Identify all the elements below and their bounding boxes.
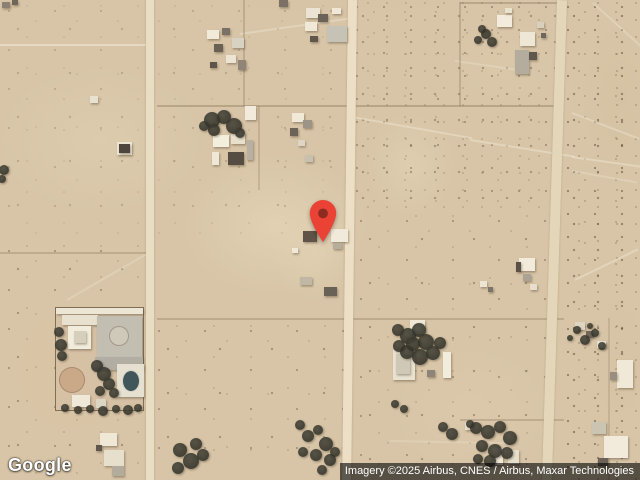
tree [501, 447, 513, 459]
tree [573, 326, 581, 334]
building [617, 360, 633, 388]
building [112, 466, 124, 476]
building [96, 445, 102, 451]
building [537, 22, 544, 28]
tree [478, 25, 486, 33]
building [292, 248, 298, 253]
attribution-bar: Imagery ©2025 Airbus, CNES / Airbus, Max… [340, 463, 640, 480]
building [212, 152, 219, 165]
ground-circle [122, 370, 140, 392]
building [318, 14, 328, 22]
building [303, 120, 312, 128]
tree [598, 342, 606, 350]
tree [587, 323, 593, 329]
parcel-boundary-line [459, 2, 461, 106]
tree [61, 404, 69, 412]
building [592, 422, 606, 434]
building [226, 55, 236, 63]
building [310, 36, 318, 42]
tree [400, 405, 408, 413]
building [119, 144, 130, 153]
building [214, 44, 223, 52]
building [520, 32, 535, 46]
building [213, 135, 229, 147]
tree [112, 405, 120, 413]
scrub-texture [563, 0, 640, 480]
tree [406, 337, 420, 351]
building [2, 2, 10, 8]
tree [235, 128, 245, 138]
tree [109, 388, 119, 398]
parcel-boundary-line [258, 106, 260, 190]
building [90, 96, 98, 103]
building [232, 38, 244, 48]
building [529, 52, 537, 60]
tree [295, 420, 305, 430]
building [305, 22, 317, 31]
building [300, 277, 312, 285]
google-logo[interactable]: Google [8, 455, 72, 476]
tree [466, 420, 474, 428]
building [427, 370, 435, 377]
tree [591, 329, 599, 337]
building [100, 433, 117, 446]
building [74, 331, 86, 343]
tree [580, 335, 590, 345]
tree [567, 335, 573, 341]
tree [434, 337, 446, 349]
building [238, 60, 246, 70]
tree [317, 465, 327, 475]
tree [474, 36, 482, 44]
tree [55, 339, 67, 351]
building [247, 140, 253, 160]
map-pin-icon[interactable] [309, 200, 337, 242]
ground-circle [59, 367, 85, 393]
parcel-boundary-line [243, 0, 245, 106]
parcel-boundary-line [0, 44, 148, 46]
building [298, 140, 305, 146]
tree [446, 428, 458, 440]
building [228, 152, 244, 165]
tree [494, 421, 506, 433]
building [279, 0, 288, 7]
building [245, 106, 256, 120]
parcel-boundary-line [157, 105, 557, 107]
building [480, 281, 487, 287]
building [530, 284, 537, 290]
tree [134, 404, 142, 412]
tree [98, 406, 108, 416]
building [505, 8, 512, 13]
tree [190, 438, 202, 450]
tree [412, 349, 428, 365]
tree [86, 405, 94, 413]
tree [54, 327, 64, 337]
building [207, 30, 219, 39]
ground-circle [109, 326, 129, 346]
building [541, 33, 546, 38]
building [515, 50, 529, 74]
tree [302, 430, 314, 442]
dirt-road [146, 0, 154, 480]
building [488, 287, 493, 292]
satellite-map[interactable]: Google Imagery ©2025 Airbus, CNES / Airb… [0, 0, 640, 480]
pin-dot [318, 208, 328, 218]
parcel-boundary-line [460, 2, 560, 4]
building [222, 28, 230, 35]
tree [123, 405, 133, 415]
pin-body [310, 200, 336, 242]
tree [199, 121, 209, 131]
building [519, 258, 535, 271]
parcel-boundary-line [0, 252, 150, 254]
tree [313, 425, 323, 435]
building [604, 436, 628, 458]
building [516, 262, 521, 272]
building [56, 308, 143, 314]
tree [487, 37, 497, 47]
building [290, 128, 298, 136]
tree [330, 447, 340, 457]
building [210, 62, 217, 68]
parcel-boundary-line [157, 318, 564, 320]
tree [95, 386, 105, 396]
building [443, 352, 451, 378]
tree [74, 406, 82, 414]
building [324, 287, 337, 296]
building [497, 15, 512, 27]
tree [172, 462, 184, 474]
building [332, 8, 341, 14]
building [327, 26, 347, 42]
building [62, 315, 98, 325]
tree [197, 449, 209, 461]
building [333, 243, 342, 249]
tree [476, 440, 488, 452]
tree [391, 400, 399, 408]
building [12, 0, 18, 5]
tree [298, 447, 308, 457]
building [610, 372, 617, 380]
tree [481, 425, 495, 439]
tree [208, 124, 220, 136]
tree [310, 449, 322, 461]
building [305, 155, 313, 162]
building [104, 450, 124, 466]
tree [393, 340, 405, 352]
scrub-texture [352, 210, 563, 480]
tree [503, 431, 517, 445]
tree [57, 351, 67, 361]
building [523, 274, 531, 281]
attribution-text: Imagery ©2025 Airbus, CNES / Airbus, Max… [345, 465, 634, 477]
